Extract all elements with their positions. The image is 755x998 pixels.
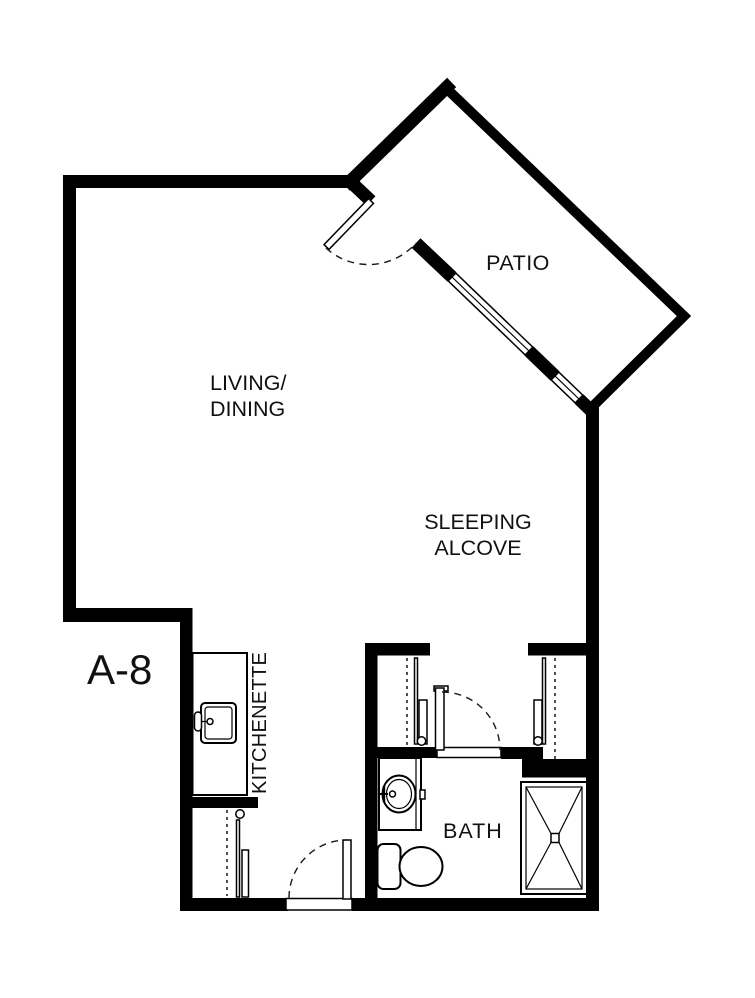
wall-bath-left [365,643,378,911]
bath-faucet-knob [390,791,396,797]
wall-patio-shared-2 [416,243,452,277]
kitchen-faucet-icon [195,712,202,731]
sliding-panel-back [237,820,240,897]
patio-walls [350,87,684,412]
wall-patio-shared-4 [579,399,592,412]
door-leaf [436,688,445,750]
floor-plan-page: A-8 PATIO LIVING/ DINING SLEEPING ALCOVE… [0,0,755,998]
kitchen-faucet-knob [207,719,213,725]
door-swing-arc [442,692,500,750]
door-swing-arc [289,840,347,898]
right-closet [534,658,555,762]
patio-window-2 [551,372,583,403]
patio-window-1 [448,273,533,355]
door-knob [534,737,542,745]
wall-bottom-left [180,898,288,911]
bath-door [434,686,501,758]
door-leaf [343,840,351,899]
wall-left-lower [180,608,193,911]
sliding-panel-front [242,850,249,897]
wall-top [63,175,360,188]
door-threshold [286,899,352,911]
wall-patio-shared-3 [529,351,555,376]
sliding-panel-back [415,658,418,744]
wall-bathdoor-left [377,747,437,758]
entry-door [286,840,352,910]
shower-drain [551,834,559,843]
wall-left-jog [63,608,192,622]
sleeping-alcove-label-line1: SLEEPING [424,510,532,534]
living-dining-label-line2: DINING [210,397,285,421]
living-dining-label-line1: LIVING/ [210,371,286,395]
floor-plan: A-8 PATIO LIVING/ DINING SLEEPING ALCOVE… [0,0,755,998]
door-knob [236,810,244,818]
wall-diagonal-to-patio [350,87,447,182]
toilet-tank [378,844,401,889]
window-glass-line [452,277,529,351]
wall-shower-top [522,759,599,778]
bath-label: BATH [443,819,503,843]
door-knob [417,737,425,745]
patio-label: PATIO [486,251,550,275]
wall-patio-outer [447,89,684,409]
left-closet [407,658,427,745]
sliding-panel-back [543,658,546,744]
wall-bottom-right [352,898,599,911]
bath-vanity-handle [420,790,425,799]
kitchenette-fixtures [193,653,248,795]
entry-closet [227,810,249,897]
wall-right-closet-top [528,643,599,656]
patio-door [324,199,416,265]
kitchen-sink [201,703,236,743]
unit-label: A-8 [87,646,152,693]
kitchenette-label: KITCHENETTE [249,652,271,794]
wall-kitchen-stub [180,797,258,808]
wall-left-upper [63,175,76,622]
door-threshold [437,748,501,758]
door-swing-arc [326,243,416,265]
toilet-bowl [400,847,443,886]
sleeping-alcove-label-line2: ALCOVE [434,536,521,560]
door-leaf [324,199,374,250]
